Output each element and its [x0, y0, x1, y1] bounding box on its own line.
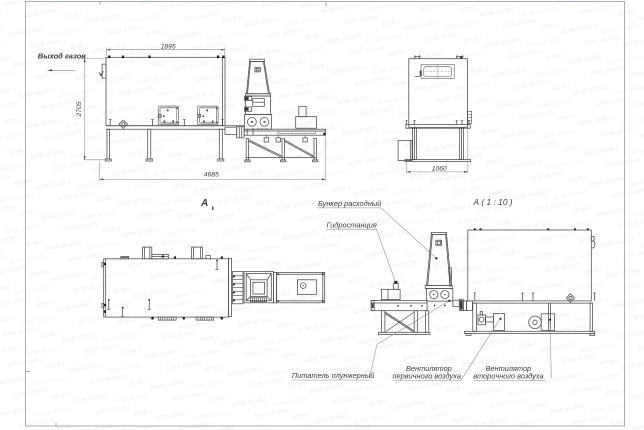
svg-text:1895: 1895 [161, 43, 176, 50]
svg-text:2705: 2705 [76, 101, 83, 117]
svg-text:4685: 4685 [204, 171, 219, 178]
svg-text:А ( 1 : 10 ): А ( 1 : 10 ) [473, 197, 513, 207]
svg-text:вторичного воздуха: вторичного воздуха [473, 372, 543, 381]
svg-text:Гидростанция: Гидростанция [327, 221, 377, 230]
svg-text:первичного воздуха: первичного воздуха [392, 372, 460, 381]
svg-text:Питатель плунжерный: Питатель плунжерный [292, 371, 375, 380]
svg-text:Выход газов: Выход газов [38, 52, 86, 61]
svg-text:А: А [200, 198, 208, 209]
svg-text:1060: 1060 [432, 165, 447, 172]
svg-text:Бункер расходный: Бункер расходный [318, 199, 381, 208]
